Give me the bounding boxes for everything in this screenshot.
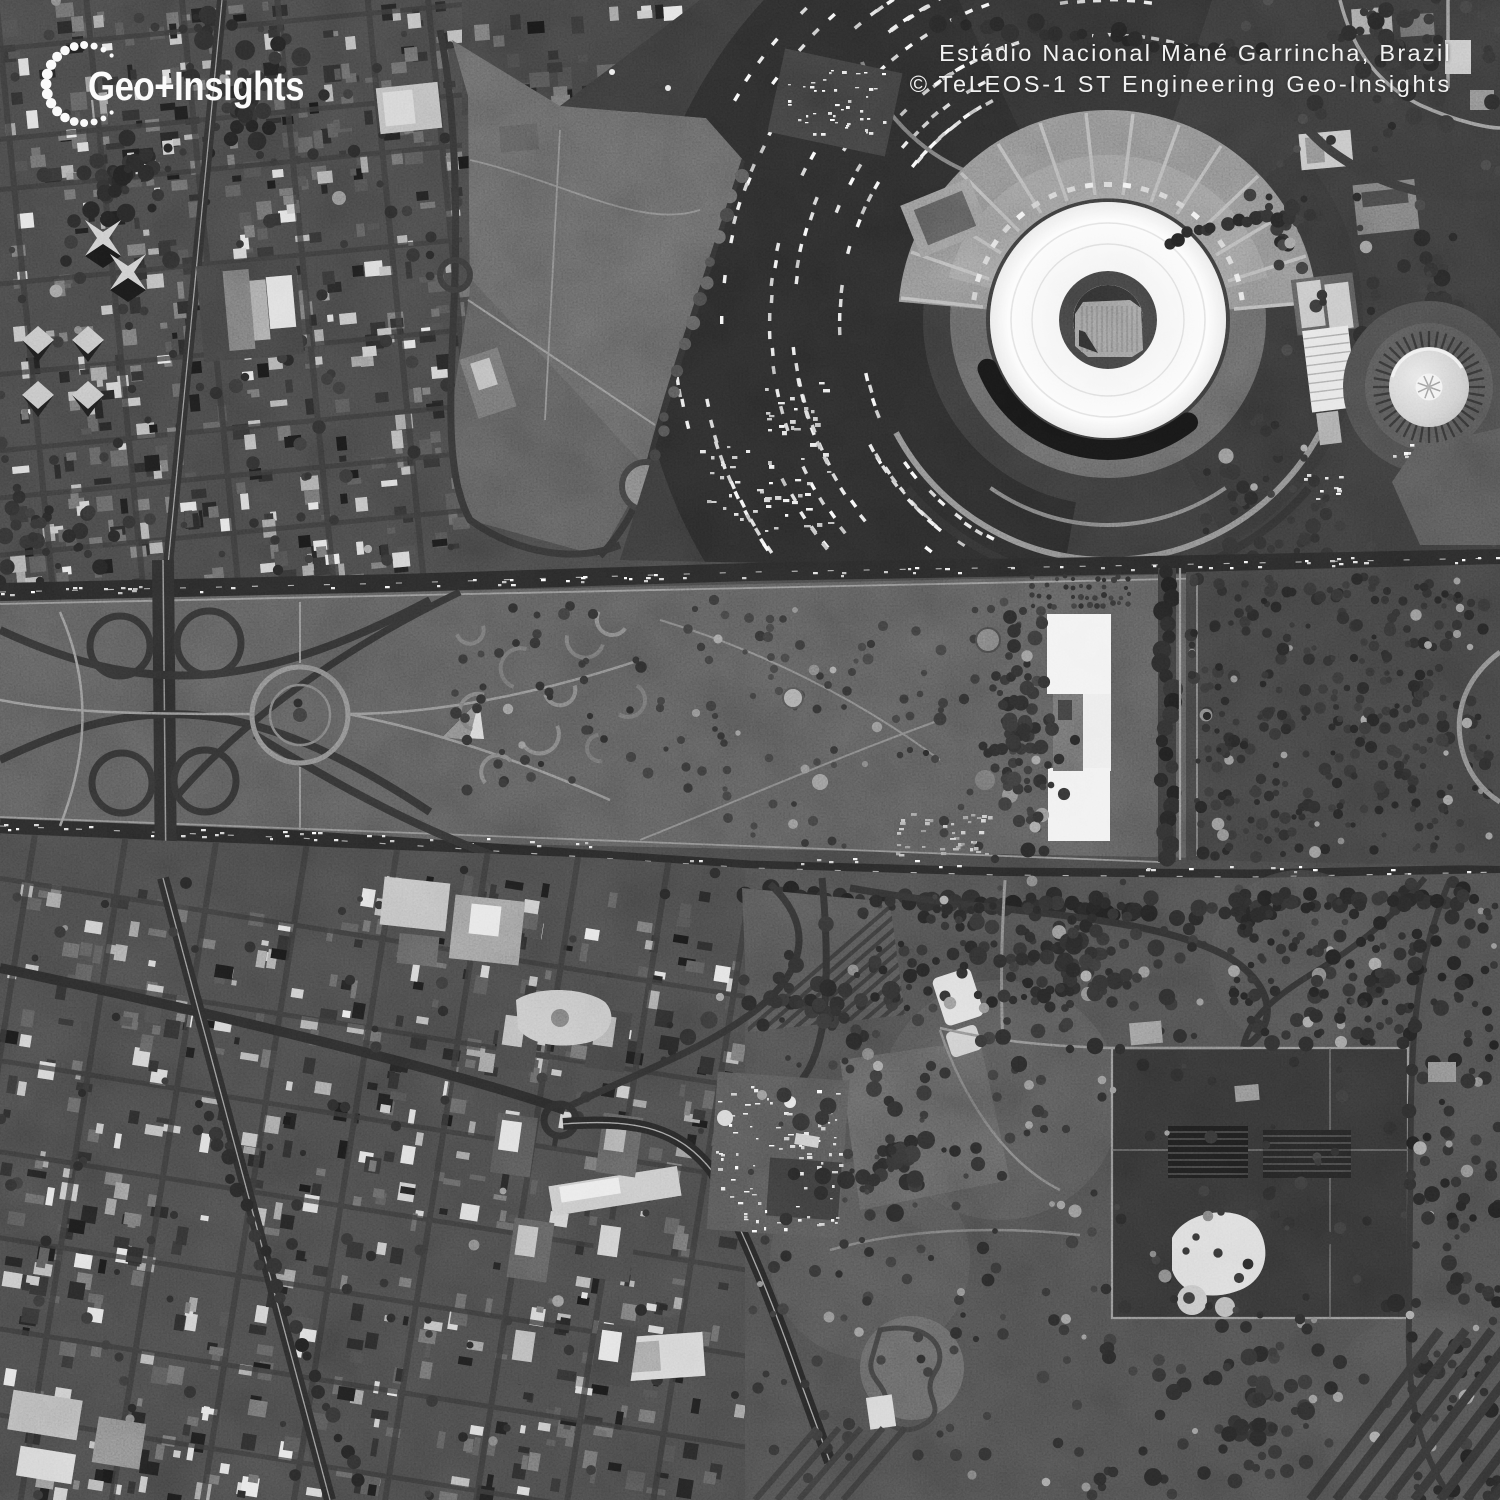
svg-text:Geo+Insights: Geo+Insights <box>88 63 304 109</box>
